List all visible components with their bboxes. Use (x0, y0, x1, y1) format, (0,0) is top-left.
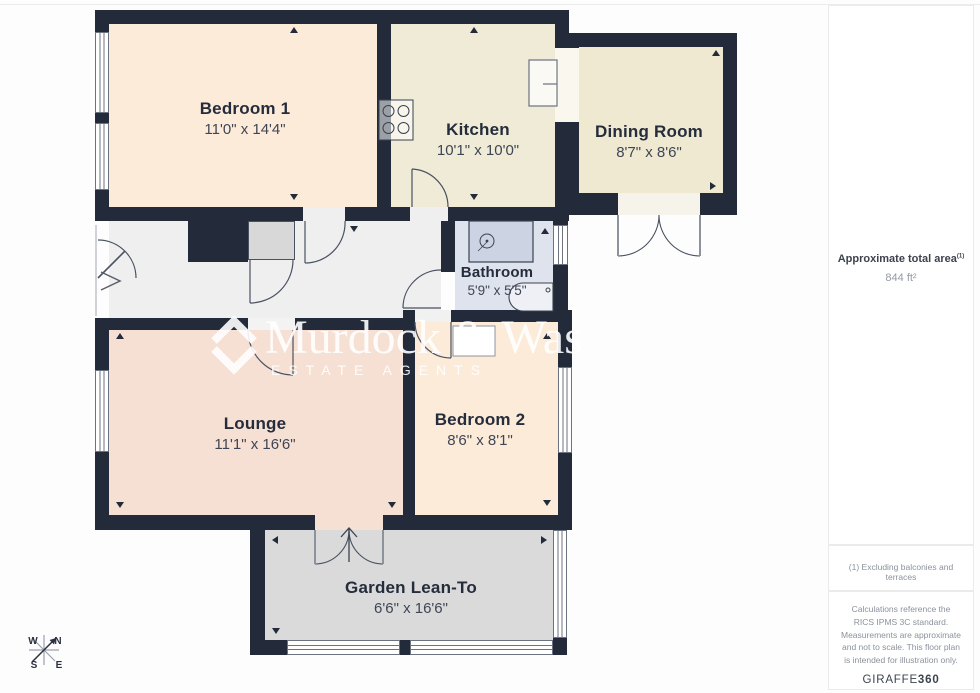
doors-and-fixtures-layer (0, 0, 980, 693)
garden-entry-arrow-icon (341, 528, 357, 562)
room-name: Garden Lean-To (345, 578, 477, 598)
room-dims: 8'7" x 8'6" (595, 144, 703, 161)
bedroom2-cupboard (453, 326, 495, 356)
room-dims: 11'1" x 16'6" (214, 436, 295, 453)
label-bedroom1: Bedroom 1 11'0" x 14'4" (200, 99, 291, 138)
room-dims: 11'0" x 14'4" (200, 121, 291, 138)
sink-icon (529, 60, 557, 106)
kitchen-door (412, 169, 448, 207)
hob-icon (379, 100, 413, 140)
bathroom-door (403, 270, 441, 308)
shower-icon (469, 221, 533, 262)
room-dims: 10'1" x 10'0" (437, 142, 519, 159)
label-dining-room: Dining Room 8'7" x 8'6" (595, 122, 703, 161)
dining-french-doors (618, 215, 700, 256)
front-door (98, 240, 136, 278)
room-dims: 6'6" x 16'6" (345, 600, 477, 617)
bedroom1-door (305, 221, 345, 263)
lounge-door (248, 330, 293, 375)
garden-doors (315, 528, 383, 564)
room-name: Bedroom 2 (435, 410, 526, 430)
room-name: Bedroom 1 (200, 99, 291, 119)
label-kitchen: Kitchen 10'1" x 10'0" (437, 120, 519, 159)
room-name: Lounge (214, 414, 295, 434)
label-bathroom: Bathroom 5'9" x 5'5" (461, 264, 533, 298)
bedroom2-door (415, 322, 451, 358)
room-name: Kitchen (437, 120, 519, 140)
room-dims: 5'9" x 5'5" (461, 283, 533, 298)
entry-arrow-icon (101, 272, 120, 290)
room-dims: 8'6" x 8'1" (435, 432, 526, 449)
room-name: Bathroom (461, 264, 533, 281)
floorplan-page: Bedroom 1 11'0" x 14'4" Kitchen 10'1" x … (0, 0, 980, 693)
label-garden-lean-to: Garden Lean-To 6'6" x 16'6" (345, 578, 477, 617)
room-name: Dining Room (595, 122, 703, 142)
label-bedroom2: Bedroom 2 8'6" x 8'1" (435, 410, 526, 449)
label-lounge: Lounge 11'1" x 16'6" (214, 414, 295, 453)
